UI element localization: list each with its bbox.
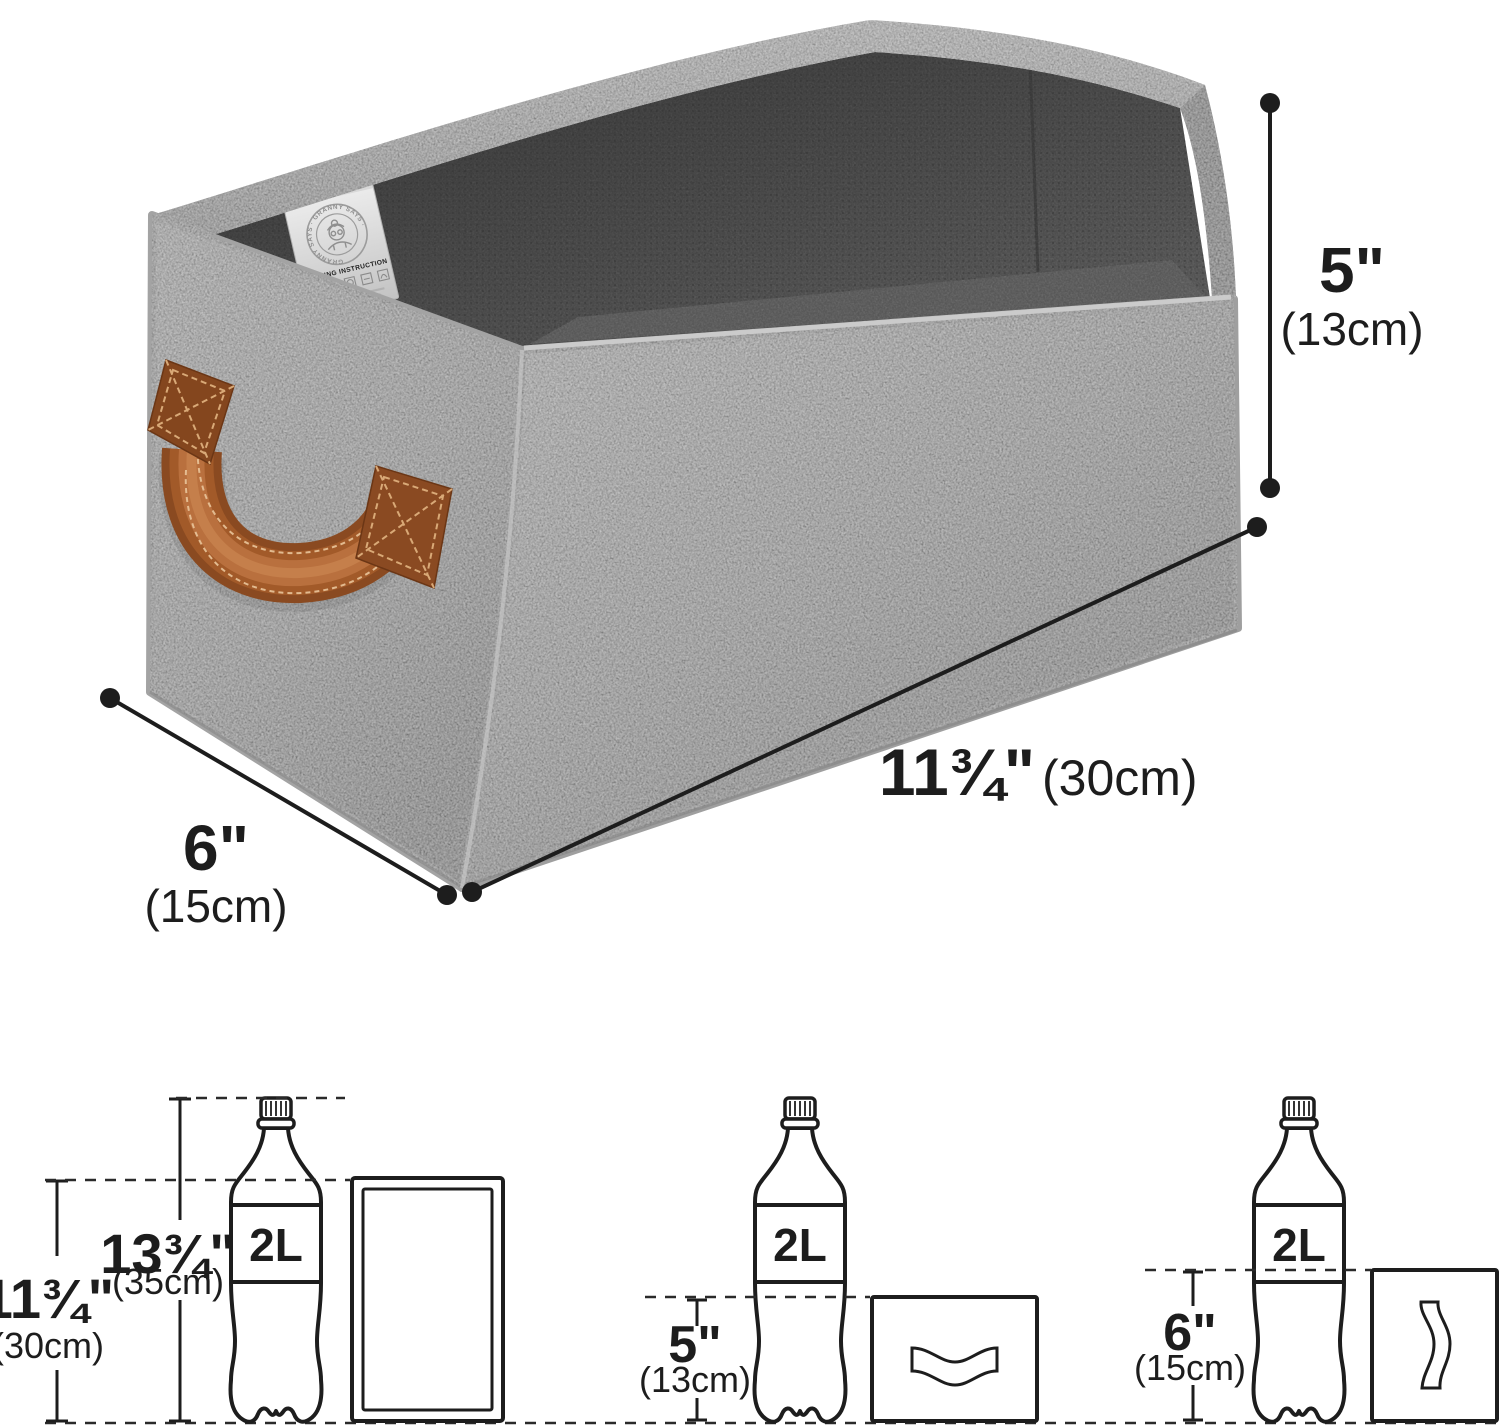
- depth-value: 6": [183, 812, 249, 884]
- bottle-height-metric: (35cm): [112, 1261, 224, 1302]
- dimension-endpoint-dot: [1260, 93, 1280, 113]
- height-value: 5": [1319, 234, 1385, 306]
- dimension-endpoint-dot: [1247, 517, 1267, 537]
- height-metric: (13cm): [1280, 303, 1423, 355]
- dimension-endpoint-dot: [462, 882, 482, 902]
- product-dimension-diagram: 2L GRANNY SAYS · GRANNY SAYS ·: [0, 0, 1500, 1426]
- upright-height-metric: (30cm): [0, 1325, 104, 1366]
- length-value: 11¾": [879, 735, 1035, 809]
- side-height-metric: (15cm): [1134, 1347, 1246, 1388]
- dimension-endpoint-dot: [100, 688, 120, 708]
- dimension-endpoint-dot: [437, 885, 457, 905]
- upright-height-value: 11¾": [0, 1267, 114, 1330]
- flat-height-metric: (13cm): [639, 1359, 751, 1400]
- dimension-endpoint-dot: [1260, 478, 1280, 498]
- diagram-canvas: 2L GRANNY SAYS · GRANNY SAYS ·: [0, 0, 1500, 1426]
- depth-metric: (15cm): [144, 880, 287, 932]
- folded-bin-flat-outline: [872, 1297, 1037, 1421]
- length-metric: (30cm): [1042, 750, 1198, 806]
- folded-bin-front-outline: [352, 1178, 503, 1421]
